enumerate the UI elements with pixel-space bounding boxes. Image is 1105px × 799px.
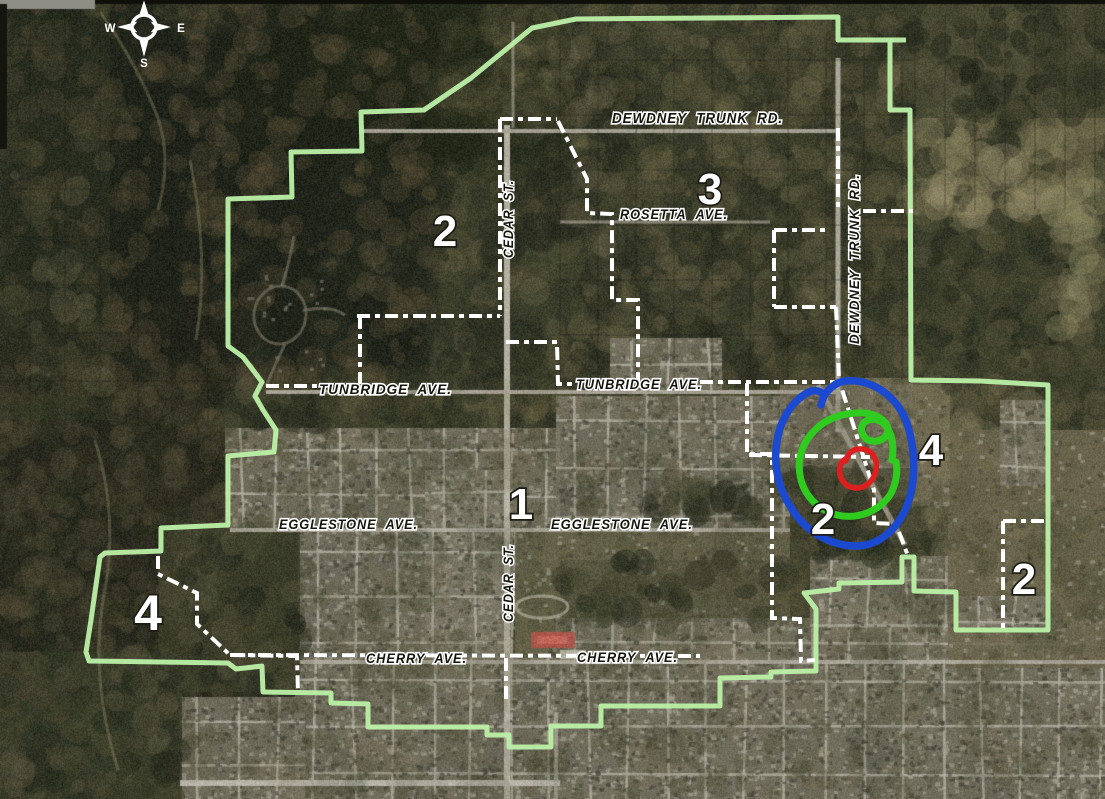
- svg-text:TUNBRIDGE AVE.: TUNBRIDGE AVE.: [576, 376, 702, 392]
- svg-text:CEDAR ST.: CEDAR ST.: [500, 544, 516, 622]
- svg-text:2: 2: [1012, 555, 1036, 604]
- svg-text:4: 4: [134, 585, 162, 641]
- svg-text:CHERRY AVE.: CHERRY AVE.: [577, 649, 678, 665]
- svg-text:3: 3: [698, 165, 722, 214]
- svg-text:S: S: [140, 58, 148, 70]
- svg-text:2: 2: [433, 207, 457, 256]
- svg-text:TUNBRIDGE AVE.: TUNBRIDGE AVE.: [319, 381, 452, 397]
- svg-text:E: E: [177, 23, 185, 35]
- svg-text:EGGLESTONE AVE.: EGGLESTONE AVE.: [551, 516, 693, 532]
- svg-text:EGGLESTONE AVE.: EGGLESTONE AVE.: [279, 516, 418, 532]
- svg-text:CEDAR ST.: CEDAR ST.: [500, 180, 516, 258]
- svg-text:2: 2: [811, 495, 835, 544]
- svg-text:W: W: [105, 23, 116, 35]
- svg-text:DEWDNEY TRUNK RD.: DEWDNEY TRUNK RD.: [846, 174, 862, 344]
- svg-text:1: 1: [509, 480, 533, 529]
- svg-text:DEWDNEY TRUNK RD.: DEWDNEY TRUNK RD.: [612, 110, 783, 127]
- svg-text:4: 4: [919, 426, 944, 475]
- svg-text:CHERRY AVE.: CHERRY AVE.: [366, 650, 467, 666]
